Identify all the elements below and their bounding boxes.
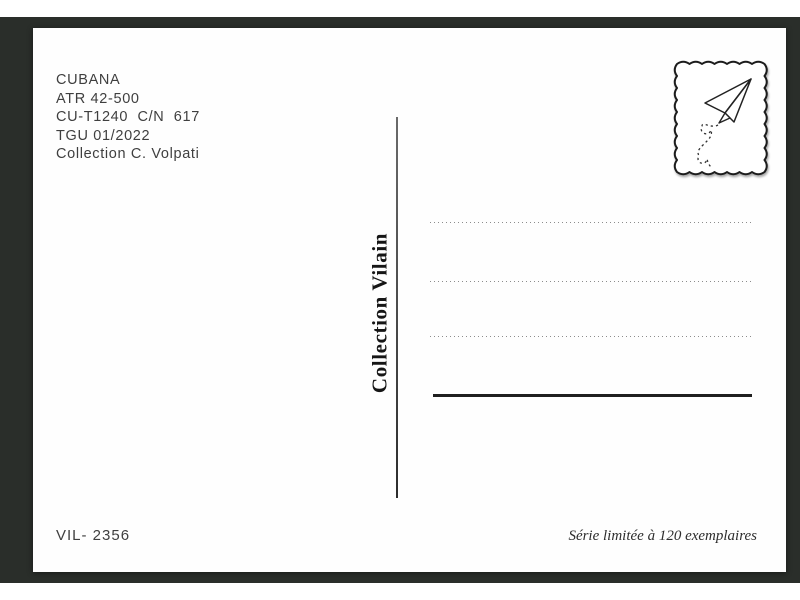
stamp-box xyxy=(672,57,770,180)
catalog-number: VIL- 2356 xyxy=(56,527,130,544)
wavy-stamp-frame xyxy=(675,62,767,175)
address-dotted-line-1 xyxy=(430,222,753,224)
registration-line: CU-T1240 C/N 617 xyxy=(56,108,200,127)
location-date-line: TGU 01/2022 xyxy=(56,127,200,146)
airline-name: CUBANA xyxy=(56,71,200,90)
stamp-border xyxy=(672,57,770,180)
address-dotted-line-3 xyxy=(430,336,753,338)
postcard-back: CUBANA ATR 42-500 CU-T1240 C/N 617 TGU 0… xyxy=(33,28,786,572)
edition-note: Série limitée à 120 exemplaires xyxy=(568,528,757,545)
address-dotted-line-2 xyxy=(430,281,753,283)
aircraft-info-block: CUBANA ATR 42-500 CU-T1240 C/N 617 TGU 0… xyxy=(56,71,200,164)
aircraft-type: ATR 42-500 xyxy=(56,90,200,109)
publisher-spine-text: Collection Vilain xyxy=(368,233,393,393)
photo-credit-line: Collection C. Volpati xyxy=(56,145,200,164)
address-divider-line xyxy=(396,117,398,498)
address-solid-line xyxy=(433,394,752,397)
